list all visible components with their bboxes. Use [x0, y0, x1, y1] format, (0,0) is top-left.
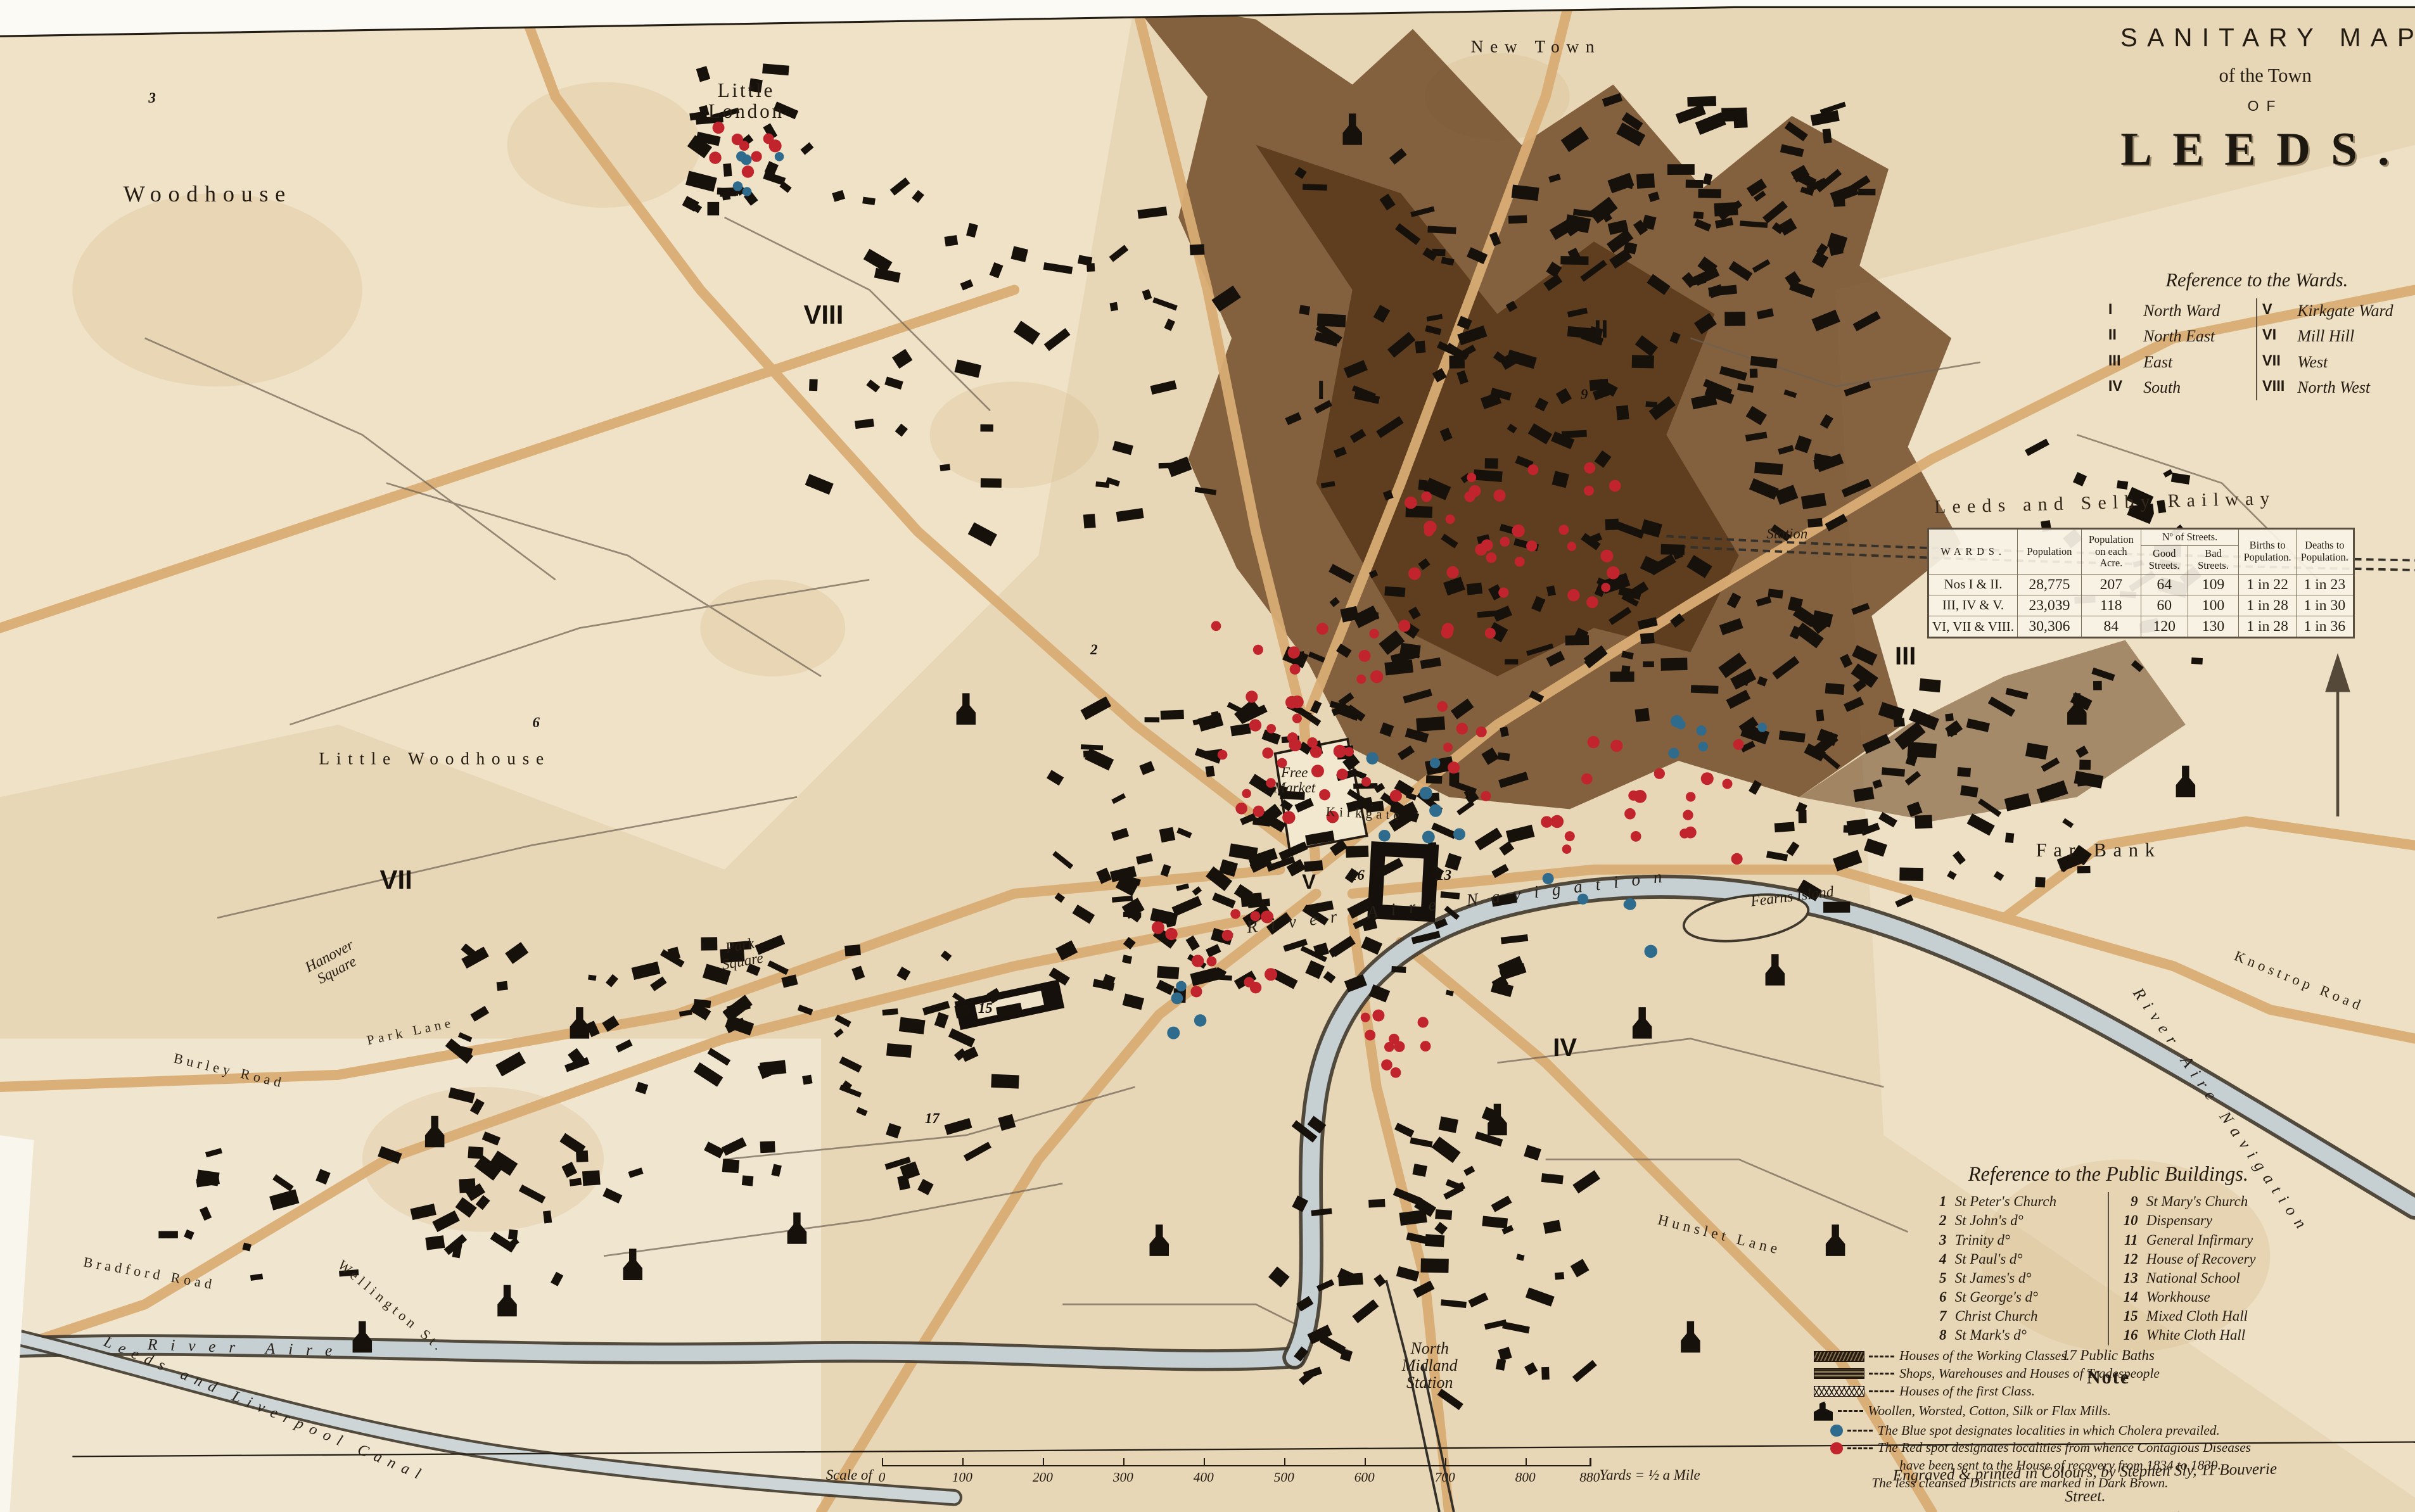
stat-population: 28,775 [2018, 574, 2082, 595]
ward-numeral-iv: IV [1553, 1034, 1577, 1061]
stat-good: 60 [2141, 595, 2188, 616]
wards-reference-heading: Reference to the Wards. [2103, 269, 2410, 291]
scale-tick-label: 200 [1033, 1470, 1053, 1485]
ward-numeral-viii: VIII [803, 300, 843, 328]
ward-item: VKirkgate Ward [2262, 298, 2405, 324]
building-name: Dispensary [2146, 1211, 2212, 1230]
attribution: Engraved & printed in Colours, by Stephe… [1873, 1457, 2297, 1512]
scale-ruler: 0100200300400500600700800880 [882, 1465, 1590, 1498]
building-number: 1 [1923, 1192, 1946, 1211]
scale-tick-label: 700 [1435, 1470, 1455, 1485]
building-number: 4 [1923, 1250, 1946, 1269]
building-number-17: 17 [925, 1111, 940, 1126]
stats-header-per-acre: Population on each Acre. [2081, 529, 2141, 575]
legend-label: Shops, Warehouses and Houses of Tradespe… [1899, 1366, 2160, 1382]
building-number-13: 13 [1437, 868, 1451, 883]
map-title: SANITARY MAP [2120, 23, 2410, 53]
building-name: House of Recovery [2146, 1250, 2256, 1269]
stat-wards: III, IV & V. [1928, 595, 2017, 616]
ward-item: IVSouth [2108, 375, 2252, 400]
label-burley-road: Burley Road [172, 1051, 286, 1091]
building-item: 16White Cloth Hall [2115, 1326, 2293, 1345]
stat-bad: 100 [2188, 595, 2239, 616]
scale-suffix: Yards = ½ a Mile [1599, 1465, 1700, 1482]
stat-bad: 109 [2188, 574, 2239, 595]
wards-reference-columns: INorth Ward IINorth East IIIEast IVSouth… [2103, 298, 2410, 400]
stat-good: 64 [2141, 574, 2188, 595]
scale-prefix: Scale of [826, 1465, 872, 1482]
stat-per-acre: 207 [2081, 574, 2141, 595]
building-name: St Mark's d° [1955, 1326, 2027, 1345]
scale-tick [962, 1458, 964, 1466]
building-item: 14Workhouse [2115, 1288, 2293, 1307]
scale-tick [1365, 1458, 1366, 1466]
ward-numeral: II [2108, 324, 2143, 349]
ward-item: VIIWest [2262, 350, 2405, 375]
stat-deaths: 1 in 30 [2296, 595, 2354, 616]
map-subtitle-of: OF [2120, 98, 2410, 115]
building-name: National School [2146, 1269, 2240, 1288]
building-item: 4St Paul's d° [1923, 1250, 2101, 1269]
label-far-bank: Far Bank [2036, 840, 2162, 860]
red-spot-icon [1830, 1442, 1842, 1454]
building-number: 2 [1923, 1211, 1946, 1230]
building-number: 16 [2115, 1326, 2138, 1345]
ward-numeral: VI [2262, 324, 2297, 349]
scale-tick-label: 0 [879, 1470, 886, 1485]
building-number: 12 [2115, 1250, 2138, 1269]
attribution-line-1: Engraved & printed in Colours, by Stephe… [1873, 1457, 2297, 1512]
stat-wards: VI, VII & VIII. [1928, 616, 2017, 637]
scale-tick [1043, 1458, 1044, 1466]
legend-leader [1838, 1410, 1863, 1412]
building-name: St Paul's d° [1955, 1250, 2023, 1269]
ward-numeral-iii: III [1895, 643, 1916, 670]
scale-tick [1526, 1458, 1527, 1466]
building-name: St John's d° [1955, 1211, 2023, 1230]
ward-statistics-table: WARDS. Population Population on each Acr… [1927, 528, 2355, 638]
blue-spot-icon [1830, 1425, 1842, 1437]
legend-label: Houses of the Working Classes. [1899, 1349, 2070, 1364]
scale-tick [882, 1458, 883, 1466]
building-number: 5 [1923, 1269, 1946, 1288]
building-number: 10 [2115, 1211, 2138, 1230]
building-number: 14 [2115, 1288, 2138, 1307]
ward-name: West [2297, 350, 2328, 375]
scale-tick [1590, 1458, 1591, 1466]
stat-population: 23,039 [2018, 595, 2082, 616]
wards-column-left: INorth Ward IINorth East IIIEast IVSouth [2103, 298, 2257, 400]
ward-name: Kirkgate Ward [2297, 298, 2393, 324]
ward-name: North Ward [2143, 298, 2220, 324]
ward-numeral: I [2108, 298, 2143, 324]
ward-item: INorth Ward [2108, 298, 2252, 324]
building-number-15: 15 [978, 1001, 993, 1016]
building-number: 11 [2115, 1231, 2138, 1250]
legend-row-mills: Woollen, Worsted, Cotton, Silk or Flax M… [1814, 1401, 2384, 1420]
stat-deaths: 1 in 36 [2296, 616, 2354, 637]
building-item: 2St John's d° [1923, 1211, 2101, 1230]
building-name: Christ Church [1955, 1307, 2038, 1326]
legend-row-first-class: Houses of the first Class. [1814, 1384, 2384, 1399]
stats-header-population: Population [2018, 529, 2082, 575]
building-number-2: 2 [1090, 642, 1097, 658]
legend-leader [1869, 1373, 1894, 1375]
stats-header-streets: Nº of Streets. [2141, 529, 2238, 546]
shops-swatch-icon [1814, 1368, 1864, 1379]
label-park-square: Park Square [718, 935, 765, 973]
wards-reference: Reference to the Wards. INorth Ward IINo… [2103, 269, 2410, 400]
working-classes-swatch-icon [1814, 1351, 1864, 1362]
stat-births: 1 in 28 [2239, 616, 2297, 637]
building-number: 7 [1923, 1307, 1946, 1326]
building-item: 8St Mark's d° [1923, 1326, 2101, 1345]
building-number: 9 [2115, 1192, 2138, 1211]
scale-tick [1204, 1458, 1205, 1466]
label-woodhouse: Woodhouse [124, 182, 292, 206]
scale-bar: Scale of 0100200300400500600700800880 Ya… [826, 1465, 1700, 1498]
label-hunslet-lane: Hunslet Lane [1656, 1212, 1783, 1258]
stat-births: 1 in 28 [2239, 595, 2297, 616]
stat-wards: Nos I & II. [1928, 574, 2017, 595]
scale-tick [1445, 1458, 1446, 1466]
stat-good: 120 [2141, 616, 2188, 637]
label-little-woodhouse: Little Woodhouse [319, 750, 550, 768]
building-name: St Peter's Church [1955, 1192, 2056, 1211]
stats-row: III, IV & V. 23,039 118 60 100 1 in 28 1… [1928, 595, 2354, 616]
ward-numeral-i: I [1317, 376, 1325, 404]
legend-label: Woollen, Worsted, Cotton, Silk or Flax M… [1868, 1404, 2112, 1419]
stat-per-acre: 84 [2081, 616, 2141, 637]
legend-row-working-classes: Houses of the Working Classes. [1814, 1349, 2384, 1364]
building-name: St James's d° [1955, 1269, 2032, 1288]
stat-bad: 130 [2188, 616, 2239, 637]
scale-tick-label: 100 [952, 1470, 972, 1485]
scale-tick-label: 300 [1113, 1470, 1133, 1485]
sanitary-map-of-leeds: WoodhouseLittle LondonNew TownLittle Woo… [0, 0, 2415, 1512]
label-bradford-road: Bradford Road [82, 1254, 217, 1292]
legend-leader [1847, 1430, 1873, 1432]
ward-numeral: IV [2108, 375, 2143, 400]
building-number: 13 [2115, 1269, 2138, 1288]
public-buildings-heading: Reference to the Public Buildings. [1918, 1163, 2299, 1186]
scale-tick-label: 880 [1579, 1470, 1600, 1485]
ward-item: VIIINorth West [2262, 375, 2405, 400]
ward-numeral-v: V [1302, 871, 1316, 893]
label-hanover-square: Hanover Square [303, 937, 364, 989]
buildings-column-right: 9St Mary's Church 10Dispensary 11General… [2109, 1192, 2299, 1345]
building-item: 7Christ Church [1923, 1307, 2101, 1326]
building-item: 3Trinity d° [1923, 1231, 2101, 1250]
ward-item: IIIEast [2108, 350, 2252, 375]
label-free-market: Free Market [1273, 765, 1315, 796]
building-name: Workhouse [2146, 1288, 2210, 1307]
label-fearns-island: Fearns Island [1750, 884, 1835, 910]
building-name: St George's d° [1955, 1288, 2038, 1307]
legend-label: The Blue spot designates localities in w… [1878, 1423, 2220, 1439]
ward-numeral: VIII [2262, 375, 2297, 400]
ward-numeral-ii: II [1594, 316, 1608, 343]
stat-deaths: 1 in 23 [2296, 574, 2354, 595]
ward-name: East [2143, 350, 2172, 375]
legend-label: Houses of the first Class. [1899, 1384, 2035, 1399]
ward-numeral: VII [2262, 350, 2297, 375]
building-number: 6 [1923, 1288, 1946, 1307]
stats-header-births: Births to Population. [2239, 529, 2297, 575]
legend-row-shops: Shops, Warehouses and Houses of Tradespe… [1814, 1366, 2384, 1382]
ward-numeral: III [2108, 350, 2143, 375]
building-name: General Infirmary [2146, 1231, 2253, 1250]
building-item: 11General Infirmary [2115, 1231, 2293, 1250]
stats-row: VI, VII & VIII. 30,306 84 120 130 1 in 2… [1928, 616, 2354, 637]
scale-tick [1123, 1458, 1125, 1466]
stats-header-wards: WARDS. [1928, 529, 2017, 575]
scale-tick-label: 400 [1194, 1470, 1214, 1485]
map-title-town: LEEDS. [2120, 123, 2410, 177]
stats-header-deaths: Deaths to Population. [2296, 529, 2354, 575]
ward-numeral: V [2262, 298, 2297, 324]
legend-row-blue-spot: The Blue spot designates localities in w… [1814, 1423, 2384, 1439]
ward-name: North East [2143, 324, 2215, 349]
stat-per-acre: 118 [2081, 595, 2141, 616]
building-item: 13National School [2115, 1269, 2293, 1288]
building-item: 10Dispensary [2115, 1211, 2293, 1230]
map-subtitle: of the Town [2120, 65, 2410, 87]
legend-leader [1869, 1356, 1894, 1357]
ward-name: South [2143, 375, 2181, 400]
building-name: Trinity d° [1955, 1231, 2010, 1250]
map-title-block: SANITARY MAP of the Town OF LEEDS. [2120, 23, 2410, 177]
scale-tick-label: 800 [1515, 1470, 1536, 1485]
public-buildings-columns: 1St Peter's Church 2St John's d° 3Trinit… [1918, 1192, 2299, 1345]
ward-numeral-vii: VII [380, 866, 412, 894]
stats-header-good-streets: Good Streets. [2141, 546, 2188, 575]
label-river-aire: River Aire [147, 1337, 345, 1361]
label-new-town: New Town [1471, 38, 1602, 56]
building-number-6: 6 [533, 715, 540, 730]
stat-population: 30,306 [2018, 616, 2082, 637]
scale-tick-label: 500 [1274, 1470, 1294, 1485]
label-knostrop-road: Knostrop Road [2232, 948, 2366, 1014]
building-name: St Mary's Church [2146, 1192, 2248, 1211]
buildings-column-left: 1St Peter's Church 2St John's d° 3Trinit… [1918, 1192, 2109, 1345]
building-name: White Cloth Hall [2146, 1326, 2245, 1345]
label-station: Station [1766, 526, 1807, 542]
stats-header-bad-streets: Bad Streets. [2188, 546, 2239, 575]
building-number: 8 [1923, 1326, 1946, 1345]
scale-tick [1284, 1458, 1285, 1466]
building-number-9: 9 [1581, 387, 1588, 402]
first-class-swatch-icon [1814, 1386, 1864, 1397]
building-item: 12House of Recovery [2115, 1250, 2293, 1269]
ward-item: VIMill Hill [2262, 324, 2405, 349]
label-kirkgate: Kirkgate [1325, 804, 1403, 822]
building-item: 6St George's d° [1923, 1288, 2101, 1307]
ward-name: Mill Hill [2297, 324, 2354, 349]
stat-births: 1 in 22 [2239, 574, 2297, 595]
building-item: 15Mixed Cloth Hall [2115, 1307, 2293, 1326]
building-number-3: 3 [148, 91, 155, 106]
building-item: 5St James's d° [1923, 1269, 2101, 1288]
wards-column-right: VKirkgate Ward VIMill Hill VIIWest VIIIN… [2257, 298, 2410, 400]
building-number: 15 [2115, 1307, 2138, 1326]
label-wellington-street: Wellington St. [335, 1257, 448, 1355]
legend-row-red-spot: The Red spot designates localities from … [1814, 1440, 2384, 1456]
label-park-lane: Park Lane [366, 1015, 456, 1048]
label-little-london: Little London [708, 80, 784, 122]
building-item: 9St Mary's Church [2115, 1192, 2293, 1211]
ward-name: North West [2297, 375, 2370, 400]
building-name: Mixed Cloth Hall [2146, 1307, 2248, 1326]
legend-leader [1869, 1390, 1894, 1392]
stats-row: Nos I & II. 28,775 207 64 109 1 in 22 1 … [1928, 574, 2354, 595]
mill-swatch-icon [1814, 1401, 1833, 1420]
scale-tick-label: 600 [1354, 1470, 1375, 1485]
legend-label: The Red spot designates localities from … [1878, 1440, 2251, 1456]
ward-item: IINorth East [2108, 324, 2252, 349]
label-north-midland-station: North Midland Station [1402, 1340, 1458, 1392]
legend-leader [1847, 1447, 1873, 1449]
building-item: 1St Peter's Church [1923, 1192, 2101, 1211]
building-number: 3 [1923, 1231, 1946, 1250]
building-number-16: 16 [1350, 868, 1365, 883]
